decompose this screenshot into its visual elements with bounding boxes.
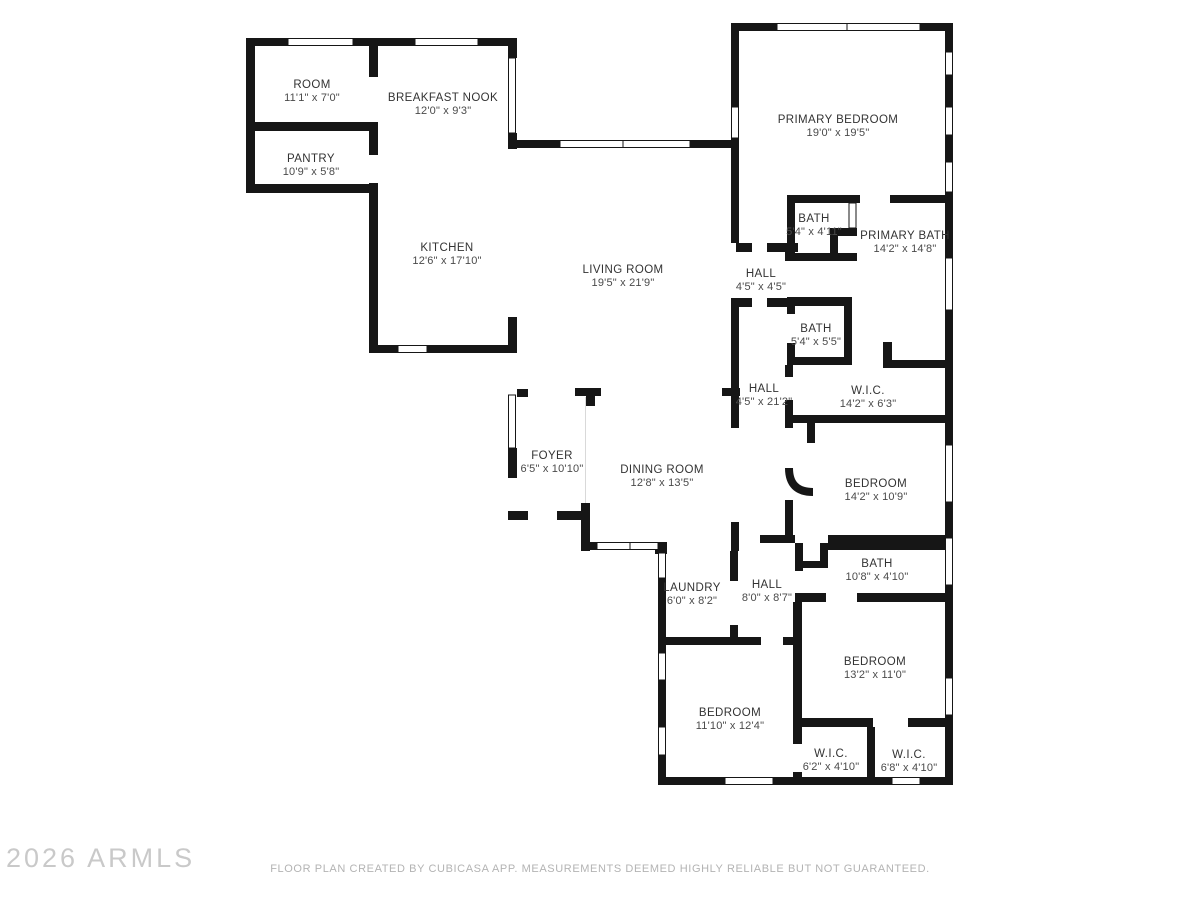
room-dimensions: 6'8" x 4'10" (881, 762, 938, 774)
room-label: BEDROOM (845, 478, 907, 490)
room-label: BATH (861, 558, 892, 570)
room-label: LIVING ROOM (582, 264, 663, 276)
room-label: W.I.C. (892, 749, 926, 761)
cubicasa-disclaimer: FLOOR PLAN CREATED BY CUBICASA APP. MEAS… (0, 863, 1200, 875)
room-label: PANTRY (287, 153, 335, 165)
room-dimensions: 11'1" x 7'0" (284, 92, 340, 104)
room-label: FOYER (531, 450, 573, 462)
room-label: HALL (749, 383, 780, 395)
room-label: PRIMARY BEDROOM (778, 114, 899, 126)
room-dimensions: 5'4" x 4'11" (786, 226, 842, 238)
room-dimensions: 11'10" x 12'4" (696, 720, 764, 732)
room-dimensions: 13'2" x 11'0" (844, 669, 906, 681)
room-label: HALL (746, 268, 777, 280)
room-label: ROOM (293, 79, 330, 91)
room-label: BEDROOM (844, 656, 906, 668)
room-dimensions: 8'0" x 8'7" (742, 592, 792, 604)
room-dimensions: 14'2" x 14'8" (874, 243, 937, 255)
room-dimensions: 12'8" x 13'5" (631, 477, 694, 489)
room-dimensions: 6'0" x 8'2" (667, 595, 717, 607)
room-dimensions: 12'6" x 17'10" (412, 255, 481, 267)
room-label: W.I.C. (814, 748, 848, 760)
floor-plan: ROOM 11'1" x 7'0" BREAKFAST NOOK 12'0" x… (0, 0, 1200, 900)
room-dimensions: 4'5" x 21'2" (736, 396, 793, 408)
room-label: BATH (800, 323, 831, 335)
room-dimensions: 14'2" x 6'3" (840, 398, 897, 410)
room-dimensions: 14'2" x 10'9" (845, 491, 908, 503)
room-label: BEDROOM (699, 707, 761, 719)
room-label: LAUNDRY (663, 582, 721, 594)
room-dimensions: 10'9" x 5'8" (283, 166, 340, 178)
room-dimensions: 19'5" x 21'9" (592, 277, 655, 289)
room-dimensions: 5'4" x 5'5" (791, 336, 841, 348)
room-dimensions: 4'5" x 4'5" (736, 281, 786, 293)
room-label: BREAKFAST NOOK (388, 92, 498, 104)
room-label: HALL (752, 579, 783, 591)
room-label: BATH (798, 213, 829, 225)
rounded-wall-corner (789, 468, 813, 492)
room-dimensions: 10'8" x 4'10" (846, 571, 909, 583)
room-dimensions: 6'2" x 4'10" (803, 761, 860, 773)
floor-plan-page: ROOM 11'1" x 7'0" BREAKFAST NOOK 12'0" x… (0, 0, 1200, 900)
room-label: KITCHEN (420, 242, 473, 254)
room-dimensions: 12'0" x 9'3" (415, 105, 472, 117)
room-labels: ROOM 11'1" x 7'0" BREAKFAST NOOK 12'0" x… (283, 79, 950, 774)
room-label: PRIMARY BATH (860, 230, 950, 242)
room-label: DINING ROOM (620, 464, 704, 476)
room-dimensions: 6'5" x 10'10" (521, 463, 584, 475)
room-dimensions: 19'0" x 19'5" (807, 127, 870, 139)
room-label: W.I.C. (851, 385, 885, 397)
